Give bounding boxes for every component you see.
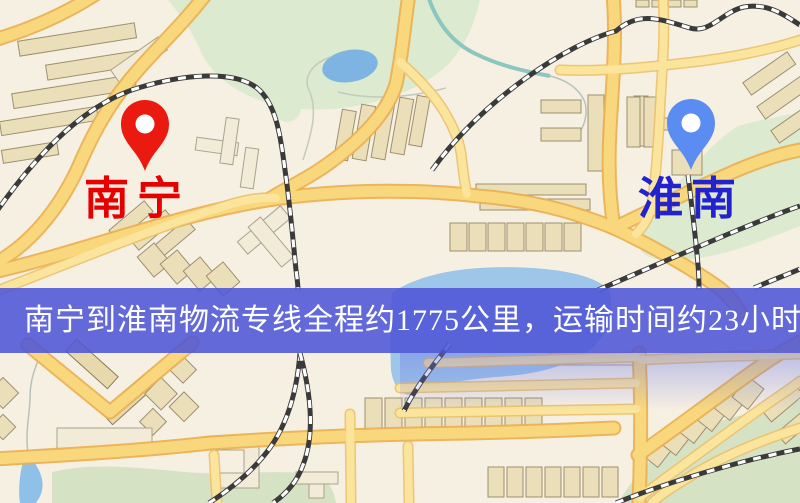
map-image: 南宁 淮南 南宁到淮南物流专线全程约1775公里，运输时间约23小时48分钟. (0, 0, 800, 503)
route-banner: 南宁到淮南物流专线全程约1775公里，运输时间约23小时48分钟. (0, 288, 800, 353)
map-background (0, 0, 800, 503)
origin-city-label: 南宁 (84, 176, 190, 224)
route-banner-text: 南宁到淮南物流专线全程约1775公里，运输时间约23小时48分钟. (0, 288, 800, 353)
destination-city-label: 淮南 (638, 176, 744, 224)
